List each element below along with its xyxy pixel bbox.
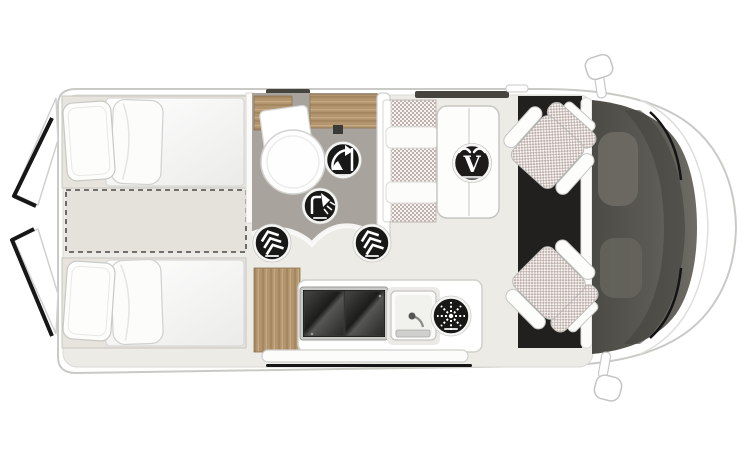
chevron-feature-icon — [353, 224, 391, 262]
shower-icon — [302, 188, 338, 224]
wood-cabinet-kitchen — [254, 268, 300, 352]
step-tread — [262, 350, 468, 362]
cabinet-latch — [333, 125, 343, 134]
console-lower — [600, 238, 642, 298]
hob-knob — [379, 295, 382, 298]
rear-door-panel — [14, 229, 58, 334]
faucet-base — [409, 313, 416, 320]
brand-v-letter: V — [462, 152, 481, 178]
mirror-head — [583, 53, 615, 82]
drainer — [396, 330, 430, 337]
fridge-snowflake-icon — [431, 296, 471, 336]
brand-v-logo-icon: V — [453, 144, 492, 183]
bench-side-trim — [383, 100, 391, 222]
wood-cabinet — [310, 94, 380, 128]
console-upper — [598, 132, 638, 206]
bench-upholstery — [388, 100, 436, 222]
floorplan-canvas: V — [0, 0, 742, 451]
entry-step — [262, 350, 472, 367]
shower-tray — [261, 130, 325, 194]
pillow — [62, 100, 115, 181]
grab-handle — [506, 85, 528, 92]
bench-cushion-band — [386, 127, 438, 148]
hob-lid-right — [345, 291, 384, 336]
step-edge-line — [266, 364, 472, 367]
bed-filler — [66, 190, 246, 252]
hob — [300, 287, 388, 340]
rear-door-top — [14, 98, 58, 206]
hob-knob — [311, 333, 314, 336]
pillow — [62, 260, 115, 341]
bed-top — [62, 96, 246, 188]
dinette-bench — [383, 100, 438, 222]
pillow-folded — [111, 259, 164, 345]
mirror-head — [592, 373, 623, 403]
bed-bottom — [62, 258, 246, 348]
bench-cushion-band — [386, 182, 438, 203]
rear-door-bottom — [12, 229, 58, 336]
chevron-feature-icon — [253, 224, 291, 262]
window-dinette — [415, 91, 509, 98]
hob-lid-left — [304, 291, 344, 336]
swivel-wall-icon — [325, 142, 362, 179]
pillow-folded — [111, 99, 164, 185]
